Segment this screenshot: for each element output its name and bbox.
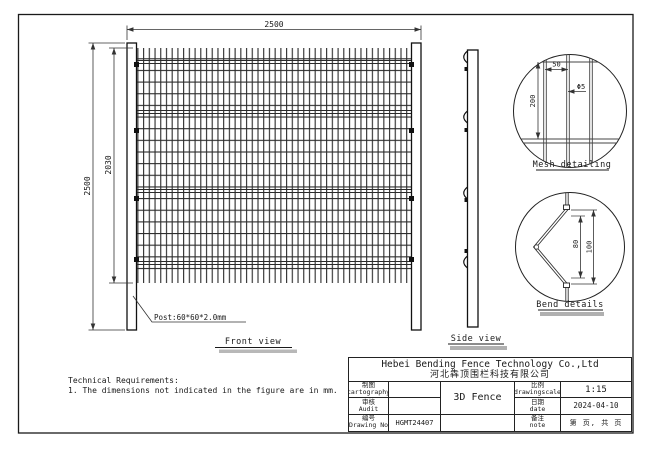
cell-date-label: 日期 date xyxy=(515,398,561,414)
front-view-label: Front view xyxy=(225,337,282,347)
technical-requirements-title: Technical Requirements: xyxy=(68,376,338,386)
dim-100-label: 100 xyxy=(586,241,594,254)
date-label-en: date xyxy=(530,406,546,414)
note-label-en: note xyxy=(530,422,546,430)
cell-drawing-no-value: HGMT24407 xyxy=(389,415,441,431)
cell-cartography-label: 制图 cartography xyxy=(349,382,389,398)
bend-detail-circle xyxy=(516,193,625,302)
dim-80-label: 80 xyxy=(572,240,580,248)
technical-requirements-item: 1. The dimensions not indicated in the f… xyxy=(68,386,338,396)
bend-apex xyxy=(534,245,538,249)
title-block: Hebei Bending Fence Technology Co.,Ltd 河… xyxy=(348,357,632,432)
cell-center-empty xyxy=(441,415,515,431)
drawing-sheet: 2500 2500 2030 Post:60*60*2.0mm Front vi… xyxy=(0,0,650,450)
dim-height-outer-label: 2500 xyxy=(83,176,92,195)
dim-200-label: 200 xyxy=(529,95,537,108)
bend-detail-label-shadow xyxy=(540,312,604,316)
technical-requirements: Technical Requirements: 1. The dimension… xyxy=(68,376,338,396)
bend-detail-label: Bend details xyxy=(536,300,603,310)
cell-product-name: 3D Fence xyxy=(441,382,515,415)
company-name-en: Hebei Bending Fence Technology Co.,Ltd xyxy=(349,359,631,370)
mesh-horizontal-wires xyxy=(137,57,412,280)
side-view-label-shadow xyxy=(450,346,507,350)
dim-height-outer-lines xyxy=(89,43,126,330)
post-note: Post:60*60*2.0mm xyxy=(154,313,227,322)
audit-label-en: Audit xyxy=(359,406,379,414)
cell-drawing-no-label: 编号 Drawing No xyxy=(349,415,389,431)
side-post xyxy=(468,50,479,327)
front-view: 2500 2500 2030 Post:60*60*2.0mm Front vi… xyxy=(83,20,421,353)
cell-scale-value: 1:15 xyxy=(561,382,631,398)
cell-cartography-value xyxy=(389,382,441,398)
right-post xyxy=(412,43,422,330)
cell-audit-value xyxy=(389,398,441,414)
bend-bracket-top xyxy=(564,205,570,210)
cell-note-value: 第 页, 共 页 xyxy=(561,415,631,431)
side-view-label: Side view xyxy=(451,334,502,344)
mesh-detail: 50 200 Φ5 Mesh detailing xyxy=(513,54,627,170)
title-block-header: Hebei Bending Fence Technology Co.,Ltd 河… xyxy=(349,358,631,382)
cell-audit-label: 审核 Audit xyxy=(349,398,389,414)
title-block-grid: 制图 cartography 3D Fence 比例 drawingscale … xyxy=(349,382,631,431)
dim-width-label: 2500 xyxy=(264,20,283,29)
mesh-detail-label: Mesh detailing xyxy=(533,160,612,170)
bend-detail: 80 100 Bend details xyxy=(516,193,625,317)
left-post xyxy=(127,43,137,330)
dim-50-label: 50 xyxy=(552,61,560,69)
wire-dia-label: Φ5 xyxy=(577,83,585,91)
front-view-label-shadow xyxy=(219,350,297,354)
dim-height-mesh-label: 2030 xyxy=(104,155,113,174)
drawing-no-label-en: Drawing No xyxy=(349,422,388,430)
cartography-label-en: cartography xyxy=(349,389,389,397)
cell-note-label: 备注 note xyxy=(515,415,561,431)
side-view: Side view xyxy=(448,50,507,350)
cell-scale-label: 比例 drawingscale xyxy=(515,382,561,398)
mesh-detail-circle xyxy=(514,55,627,168)
bend-bracket-bottom xyxy=(564,283,570,288)
cell-date-value: 2024-04-10 xyxy=(561,398,631,414)
company-name-cn: 河北犇顶围栏科技有限公司 xyxy=(349,370,631,381)
scale-label-en: drawingscale xyxy=(515,389,561,397)
